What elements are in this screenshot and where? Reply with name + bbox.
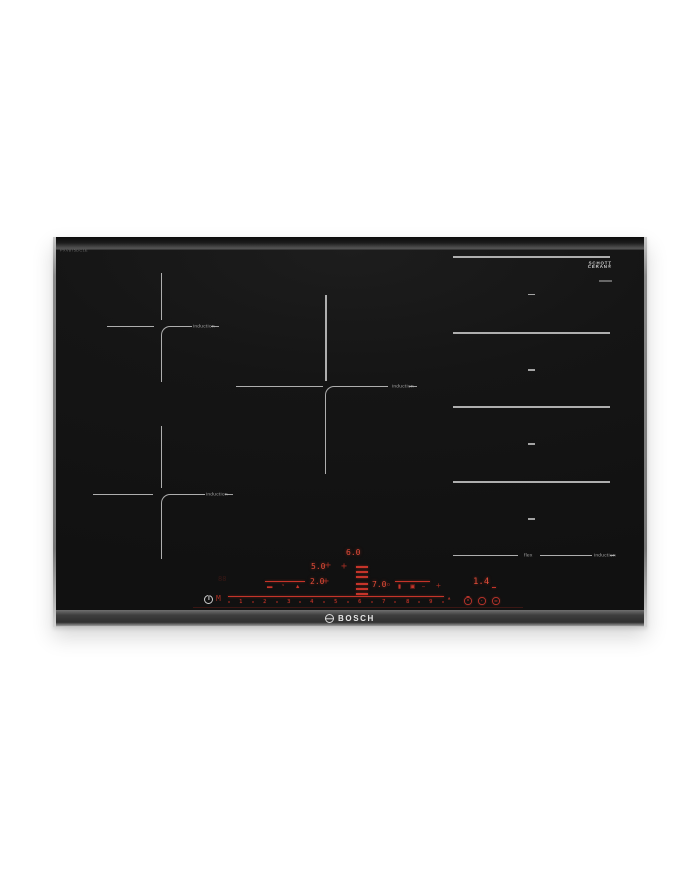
bridge-zone-icon[interactable]: ▣ bbox=[410, 584, 415, 589]
zone-c-label-dash bbox=[409, 386, 417, 388]
flex-level-bar bbox=[356, 593, 368, 595]
slider-dot bbox=[442, 601, 444, 603]
zone-c-top-line bbox=[325, 295, 327, 381]
slider-dot bbox=[299, 601, 301, 603]
zone-a-top-line bbox=[161, 273, 163, 320]
flex-segment-mark-3 bbox=[528, 443, 535, 445]
right-function-overline bbox=[395, 581, 430, 583]
wiper-function-icon[interactable]: ▬ bbox=[267, 584, 272, 589]
power-icon[interactable] bbox=[204, 595, 213, 604]
badge-subtext-mark bbox=[599, 280, 612, 282]
flex-bottom-line-right bbox=[540, 555, 592, 557]
slider-level-1[interactable]: 1 bbox=[239, 599, 242, 605]
left-function-overline bbox=[265, 581, 305, 583]
brand-logo-text: BOSCH bbox=[338, 615, 375, 623]
led-reflection-line bbox=[193, 607, 523, 608]
schott-ceran-badge: SCHOTT CERAN® bbox=[588, 261, 612, 269]
badge-line2: CERAN® bbox=[588, 264, 612, 269]
slider-level-7[interactable]: 7 bbox=[382, 599, 385, 605]
zone-a-label-dash bbox=[211, 326, 219, 328]
flex-segment-mark-1 bbox=[528, 294, 535, 296]
zone-c-corner-line bbox=[325, 386, 388, 474]
timer-display: 1.4 bbox=[473, 578, 489, 587]
zone-b-corner-line bbox=[161, 494, 205, 559]
minus-icon[interactable]: – bbox=[422, 584, 425, 589]
model-number-text: PXV875DC1E bbox=[60, 248, 88, 253]
flex-segment-mark-4 bbox=[528, 518, 535, 520]
boost-function-icon[interactable]: ▲ bbox=[295, 584, 300, 589]
flex-mid-label: flex bbox=[524, 552, 533, 558]
slider-dot bbox=[276, 601, 278, 603]
power-display-top-left: 5.0 bbox=[311, 563, 325, 571]
flex-zone-line-1 bbox=[453, 256, 610, 258]
flex-zone-line-3 bbox=[453, 406, 610, 408]
left-side-trim bbox=[53, 237, 56, 627]
zone-b-top-line bbox=[161, 426, 163, 488]
minimap-cross-2: + bbox=[341, 562, 347, 572]
power-level-slider[interactable]: 1 2 3 4 5 6 7 8 9 bbox=[228, 597, 444, 607]
flex-level-bar bbox=[356, 576, 368, 578]
zone-select-icon[interactable]: ▮ bbox=[398, 584, 401, 589]
flex-degree-mark: o bbox=[387, 583, 390, 588]
flex-level-bar bbox=[356, 583, 368, 585]
bosch-armature-icon bbox=[325, 614, 334, 623]
slider-level-6[interactable]: 6 bbox=[358, 599, 361, 605]
slider-level-9[interactable]: 9 bbox=[429, 599, 432, 605]
flex-zone-line-4 bbox=[453, 481, 610, 483]
product-photo: PXV875DC1E SCHOTT CERAN® induction induc… bbox=[0, 0, 700, 869]
flex-level-bar bbox=[356, 588, 368, 590]
ghost-segment-display: 88 bbox=[218, 576, 226, 583]
flex-zone-line-2 bbox=[453, 332, 610, 334]
zone-b-label-dash bbox=[225, 494, 233, 496]
timer-function-icon[interactable]: ◔ bbox=[281, 583, 284, 588]
right-side-trim bbox=[644, 237, 647, 627]
power-display-center: 6.0 bbox=[346, 549, 360, 557]
power-display-flex: 7.0 bbox=[372, 581, 386, 589]
flex-bottom-line-left bbox=[453, 555, 518, 557]
slider-level-3[interactable]: 3 bbox=[287, 599, 290, 605]
timer-select-icon[interactable] bbox=[478, 597, 486, 605]
top-bevel bbox=[55, 237, 645, 250]
timer-clock-icon[interactable] bbox=[464, 597, 472, 605]
zone-a-corner-line bbox=[161, 326, 192, 382]
induction-cooktop: PXV875DC1E SCHOTT CERAN® induction induc… bbox=[53, 237, 647, 627]
slider-dot bbox=[371, 601, 373, 603]
move-function-button[interactable]: M bbox=[216, 595, 221, 603]
flex-level-bar bbox=[356, 571, 368, 573]
slider-level-4[interactable]: 4 bbox=[311, 599, 314, 605]
childlock-icon[interactable] bbox=[492, 597, 500, 605]
slider-end-marker-icon: ▴ bbox=[447, 595, 451, 602]
zone-a-left-line bbox=[107, 326, 154, 328]
zone-c-left-line bbox=[236, 386, 323, 388]
minimap-cross-1: + bbox=[325, 561, 331, 571]
slider-dot bbox=[347, 601, 349, 603]
plus-button[interactable]: + bbox=[436, 582, 441, 590]
slider-level-8[interactable]: 8 bbox=[406, 599, 409, 605]
slider-dot bbox=[323, 601, 325, 603]
flex-label-dash bbox=[610, 555, 615, 557]
slider-dot bbox=[252, 601, 254, 603]
slider-dot bbox=[394, 601, 396, 603]
minimap-cross-3: + bbox=[323, 577, 329, 587]
slider-level-5[interactable]: 5 bbox=[334, 599, 337, 605]
slider-dot bbox=[418, 601, 420, 603]
flex-level-bar bbox=[356, 566, 368, 568]
slider-level-2[interactable]: 2 bbox=[263, 599, 266, 605]
slider-dot bbox=[228, 601, 230, 603]
flex-segment-mark-2 bbox=[528, 369, 535, 371]
zone-b-left-line bbox=[93, 494, 153, 496]
timer-unit-mark bbox=[492, 587, 496, 588]
front-trim: BOSCH bbox=[55, 610, 645, 627]
